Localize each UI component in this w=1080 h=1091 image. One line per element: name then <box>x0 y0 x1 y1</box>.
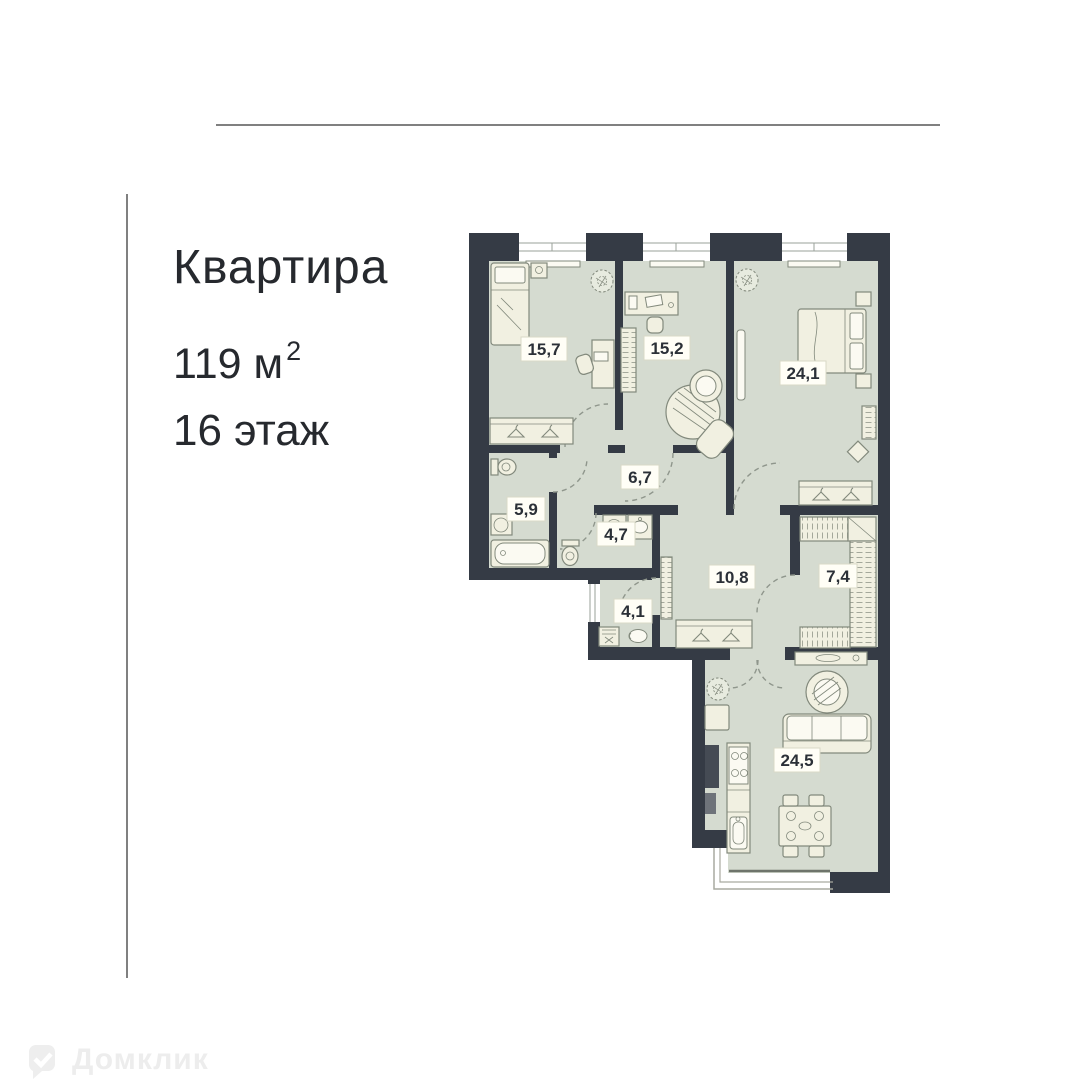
svg-text:10,8: 10,8 <box>715 568 748 587</box>
room-label-bedroom-2: 15,2 <box>644 336 690 360</box>
page-title: Квартира <box>173 240 388 295</box>
window-4 <box>586 584 600 622</box>
duct <box>705 745 719 788</box>
svg-text:4,1: 4,1 <box>621 602 645 621</box>
duct <box>705 793 716 814</box>
svg-text:15,7: 15,7 <box>527 340 560 359</box>
svg-text:4,7: 4,7 <box>604 525 628 544</box>
apartment-area: 119 м2 <box>173 336 301 389</box>
room-label-wardrobe-room: 7,4 <box>819 564 857 588</box>
window-1 <box>519 233 586 261</box>
room-label-living-kitchen: 24,5 <box>774 748 820 772</box>
svg-text:24,5: 24,5 <box>780 751 813 770</box>
svg-text:5,9: 5,9 <box>514 500 538 519</box>
room-label-laundry: 4,1 <box>614 599 652 623</box>
area-number: 119 <box>173 340 242 388</box>
svg-text:7,4: 7,4 <box>826 567 850 586</box>
radiator <box>650 261 704 267</box>
watermark: Домклик <box>22 1040 209 1080</box>
page: { "header": { "title": "Квартира", "area… <box>0 0 1080 1091</box>
room-label-corridor: 10,8 <box>709 565 755 589</box>
area-unit: м <box>254 340 284 388</box>
room-label-bathroom-1: 5,9 <box>507 497 545 521</box>
window-2 <box>643 233 710 261</box>
area-superscript: 2 <box>286 336 301 366</box>
svg-text:24,1: 24,1 <box>786 364 819 383</box>
room-label-bedroom-1: 15,7 <box>521 337 567 361</box>
domclick-wordmark: Домклик <box>72 1043 209 1077</box>
room-label-bedroom-3: 24,1 <box>780 361 826 385</box>
radiator <box>788 261 840 267</box>
floor-number: 16 этаж <box>173 406 329 456</box>
top-divider <box>216 124 940 126</box>
window-3 <box>782 233 847 261</box>
svg-text:15,2: 15,2 <box>650 339 683 358</box>
left-divider <box>126 194 128 978</box>
svg-text:6,7: 6,7 <box>628 468 652 487</box>
room-label-hallway: 6,7 <box>621 465 659 489</box>
room-label-bathroom-2: 4,7 <box>597 522 635 546</box>
domclick-logo-icon <box>22 1040 62 1080</box>
floor-plan-image: 15,7 15,2 24,1 6,7 5,9 4,7 10,8 7,4 <box>460 225 900 905</box>
